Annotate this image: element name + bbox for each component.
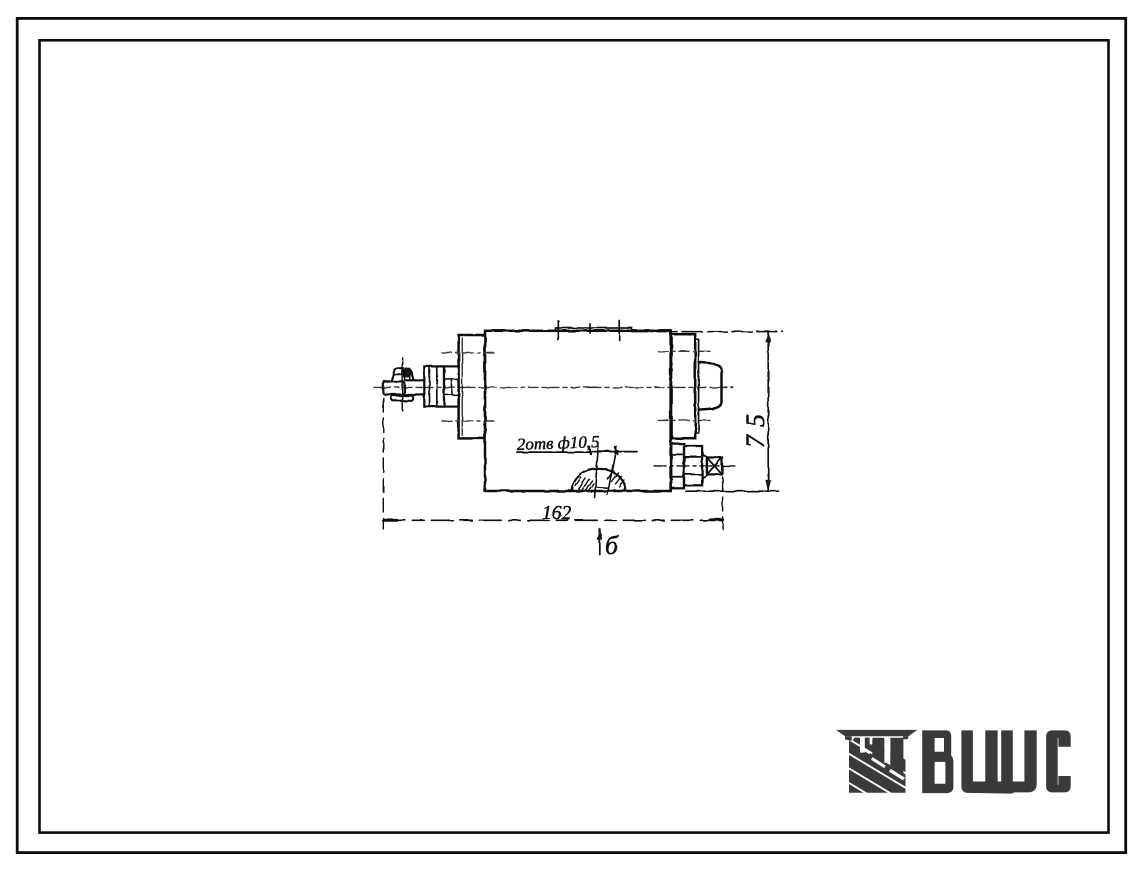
svg-text:б: б (605, 531, 619, 560)
svg-text:162: 162 (542, 503, 572, 524)
svg-text:2отв ф10,5: 2отв ф10,5 (516, 432, 599, 454)
svg-text:75: 75 (741, 406, 770, 448)
